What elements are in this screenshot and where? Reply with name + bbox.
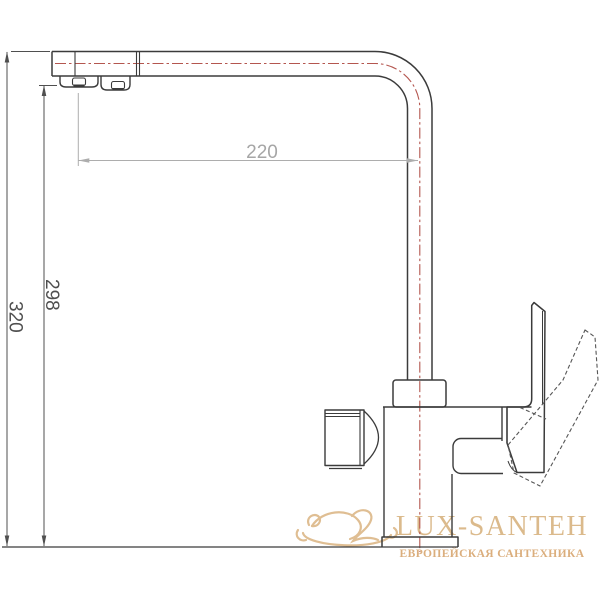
drawing-canvas: LUX-SANTEH ЕВРОПЕЙСКАЯ САНТЕХНИКА (0, 0, 600, 600)
handle-lever (507, 303, 545, 473)
handle-lever-dashed (508, 330, 598, 486)
aerator-right (101, 76, 130, 90)
centerline (55, 64, 420, 553)
filter-outlet (325, 410, 379, 469)
dim-label-220: 220 (246, 142, 278, 163)
side-block (453, 439, 503, 474)
aerator-left (60, 76, 98, 87)
dim-label-320: 320 (5, 301, 26, 333)
dim-line-298 (39, 85, 57, 547)
faucet-technical-drawing: LUX-SANTEH ЕВРОПЕЙСКАЯ САНТЕХНИКА (0, 0, 600, 600)
watermark-tagline-text: ЕВРОПЕЙСКАЯ САНТЕХНИКА (400, 546, 585, 560)
faucet-outline (2, 52, 598, 548)
dim-label-298: 298 (41, 279, 62, 311)
spout-outline (52, 52, 432, 381)
watermark: LUX-SANTEH ЕВРОПЕЙСКАЯ САНТЕХНИКА (297, 510, 588, 560)
